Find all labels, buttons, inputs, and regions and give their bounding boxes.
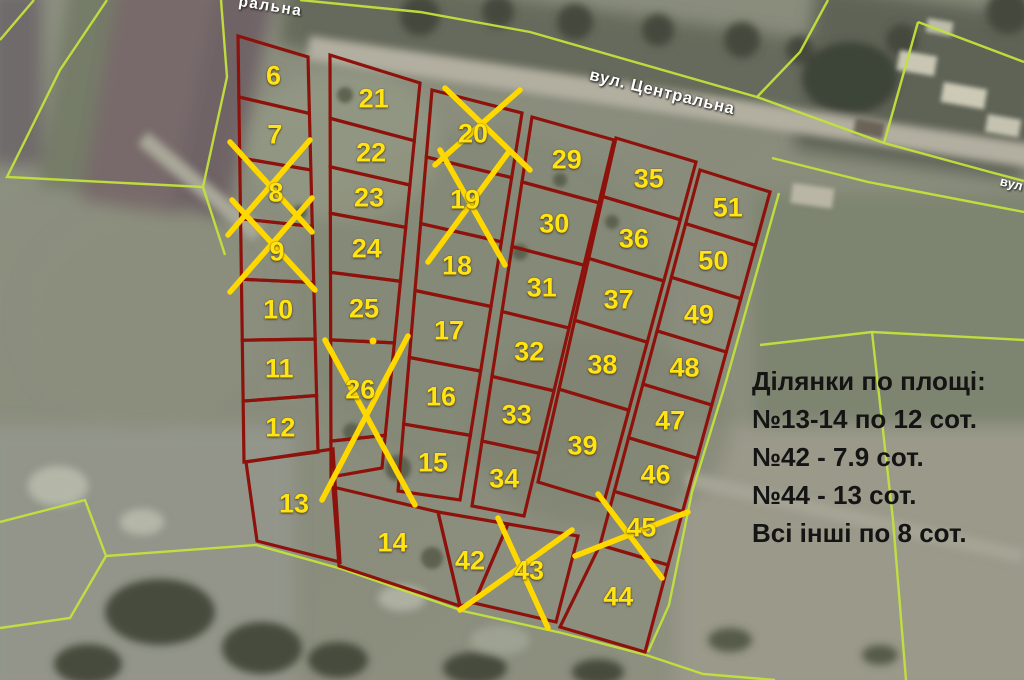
parcel-label-19: 19 bbox=[450, 187, 480, 214]
street-label-centralna: вул. Центральна bbox=[588, 66, 737, 119]
parcel-label-15: 15 bbox=[418, 449, 448, 476]
parcel-label-39: 39 bbox=[567, 432, 597, 459]
parcel-label-9: 9 bbox=[269, 238, 284, 265]
parcel-label-44: 44 bbox=[603, 584, 633, 611]
parcel-label-50: 50 bbox=[698, 248, 728, 275]
parcel-label-18: 18 bbox=[442, 252, 472, 279]
parcel-label-33: 33 bbox=[502, 402, 532, 429]
parcel-label-45: 45 bbox=[626, 515, 656, 542]
parcel-label-30: 30 bbox=[539, 211, 569, 238]
parcel-label-10: 10 bbox=[263, 297, 293, 324]
parcel-label-31: 31 bbox=[527, 274, 557, 301]
parcel-label-14: 14 bbox=[377, 529, 407, 556]
parcel-label-29: 29 bbox=[552, 147, 582, 174]
info-line-3: №44 - 13 сот. bbox=[752, 476, 1022, 514]
parcel-label-20: 20 bbox=[458, 121, 488, 148]
parcel-label-12: 12 bbox=[265, 414, 295, 441]
street-label-partial-right: вул bbox=[999, 173, 1024, 193]
parcel-label-43: 43 bbox=[514, 558, 544, 585]
parcel-label-46: 46 bbox=[641, 461, 671, 488]
label-layer: ральна вул. Центральна вул Ділянки по пл… bbox=[0, 0, 1024, 680]
street-label-partial: ральна bbox=[237, 0, 303, 21]
info-line-4: Всі інші по 8 сот. bbox=[752, 514, 1022, 552]
parcel-label-48: 48 bbox=[669, 355, 699, 382]
parcel-label-17: 17 bbox=[434, 318, 464, 345]
info-title: Ділянки по площі: bbox=[752, 362, 1022, 400]
parcel-label-37: 37 bbox=[604, 287, 634, 314]
parcel-label-38: 38 bbox=[587, 352, 617, 379]
parcel-label-47: 47 bbox=[655, 408, 685, 435]
parcel-label-11: 11 bbox=[265, 355, 294, 382]
info-line-1: №13-14 по 12 сот. bbox=[752, 400, 1022, 438]
parcel-label-23: 23 bbox=[354, 185, 384, 212]
parcel-label-25: 25 bbox=[349, 296, 379, 323]
cadastral-satellite-map: ральна вул. Центральна вул Ділянки по пл… bbox=[0, 0, 1024, 680]
parcel-label-49: 49 bbox=[684, 301, 714, 328]
parcel-label-7: 7 bbox=[267, 121, 282, 148]
parcel-label-16: 16 bbox=[426, 384, 456, 411]
parcel-label-32: 32 bbox=[514, 338, 544, 365]
parcel-label-42: 42 bbox=[455, 548, 485, 575]
parcel-label-22: 22 bbox=[356, 139, 386, 166]
parcel-label-21: 21 bbox=[359, 86, 389, 113]
parcel-label-6: 6 bbox=[266, 62, 281, 89]
info-line-2: №42 - 7.9 сот. bbox=[752, 438, 1022, 476]
parcel-label-35: 35 bbox=[634, 166, 664, 193]
parcel-label-34: 34 bbox=[489, 466, 519, 493]
parcel-label-8: 8 bbox=[268, 180, 283, 207]
parcel-label-36: 36 bbox=[619, 225, 649, 252]
area-info-panel: Ділянки по площі: №13-14 по 12 сот. №42 … bbox=[752, 362, 1022, 552]
parcel-label-13: 13 bbox=[279, 490, 309, 517]
parcel-label-51: 51 bbox=[713, 194, 743, 221]
parcel-label-26: 26 bbox=[345, 376, 375, 403]
parcel-label-24: 24 bbox=[352, 235, 382, 262]
